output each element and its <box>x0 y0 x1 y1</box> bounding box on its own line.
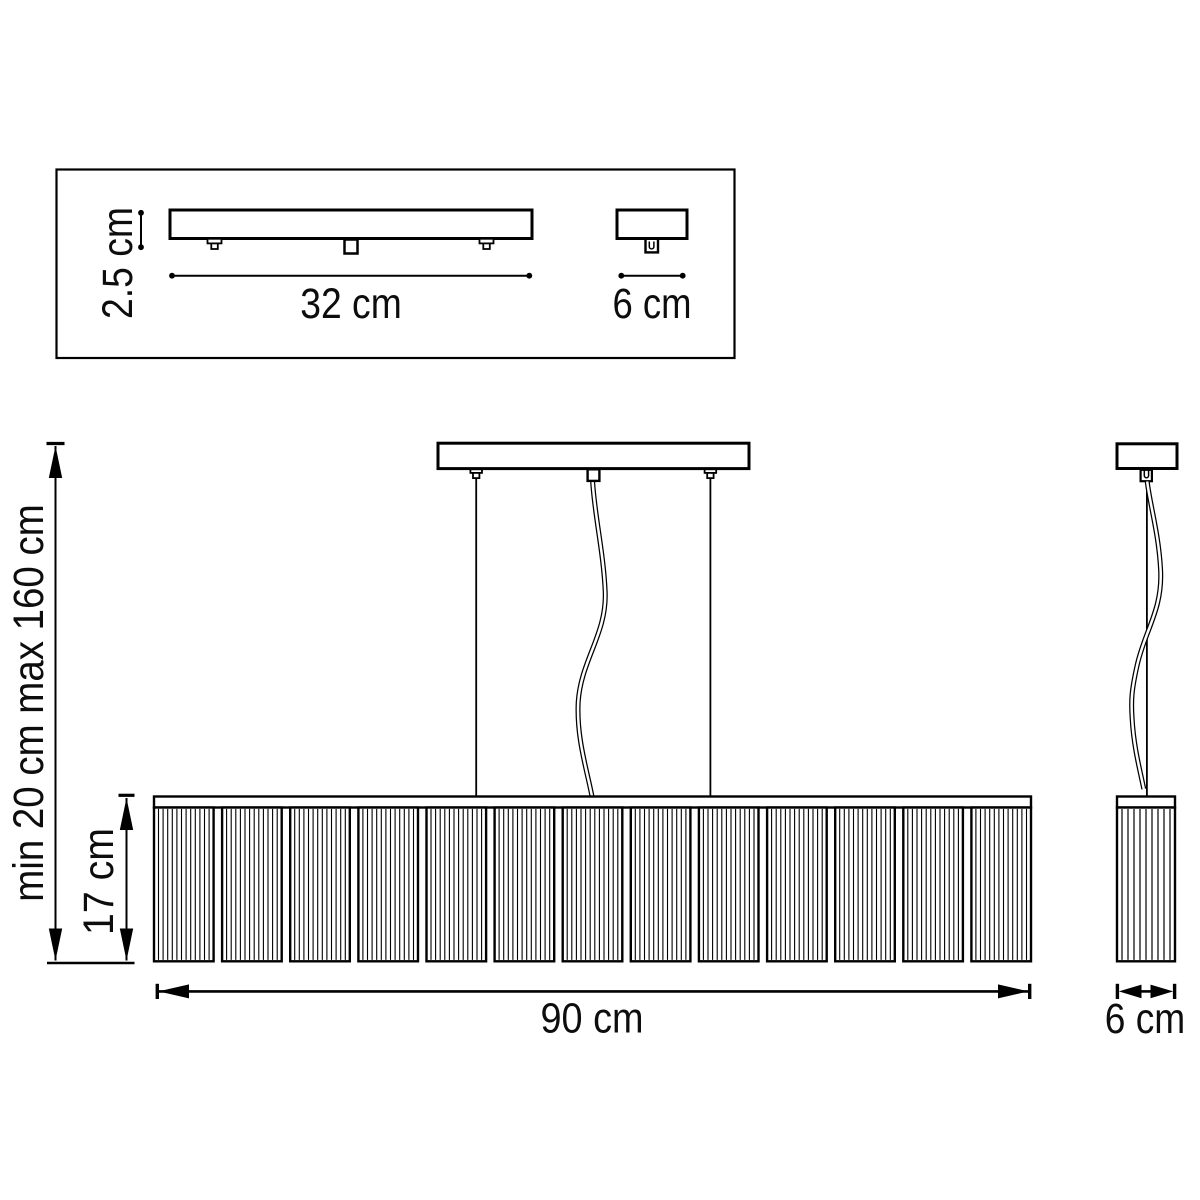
svg-text:32 cm: 32 cm <box>300 280 402 328</box>
svg-text:17 cm: 17 cm <box>75 828 123 935</box>
svg-text:2.5 cm: 2.5 cm <box>94 207 142 319</box>
svg-text:6 cm: 6 cm <box>1105 995 1186 1043</box>
svg-text:6 cm: 6 cm <box>613 280 692 328</box>
svg-text:min 20 cm max 160 cm: min 20 cm max 160 cm <box>5 504 53 902</box>
svg-text:90 cm: 90 cm <box>541 995 644 1043</box>
